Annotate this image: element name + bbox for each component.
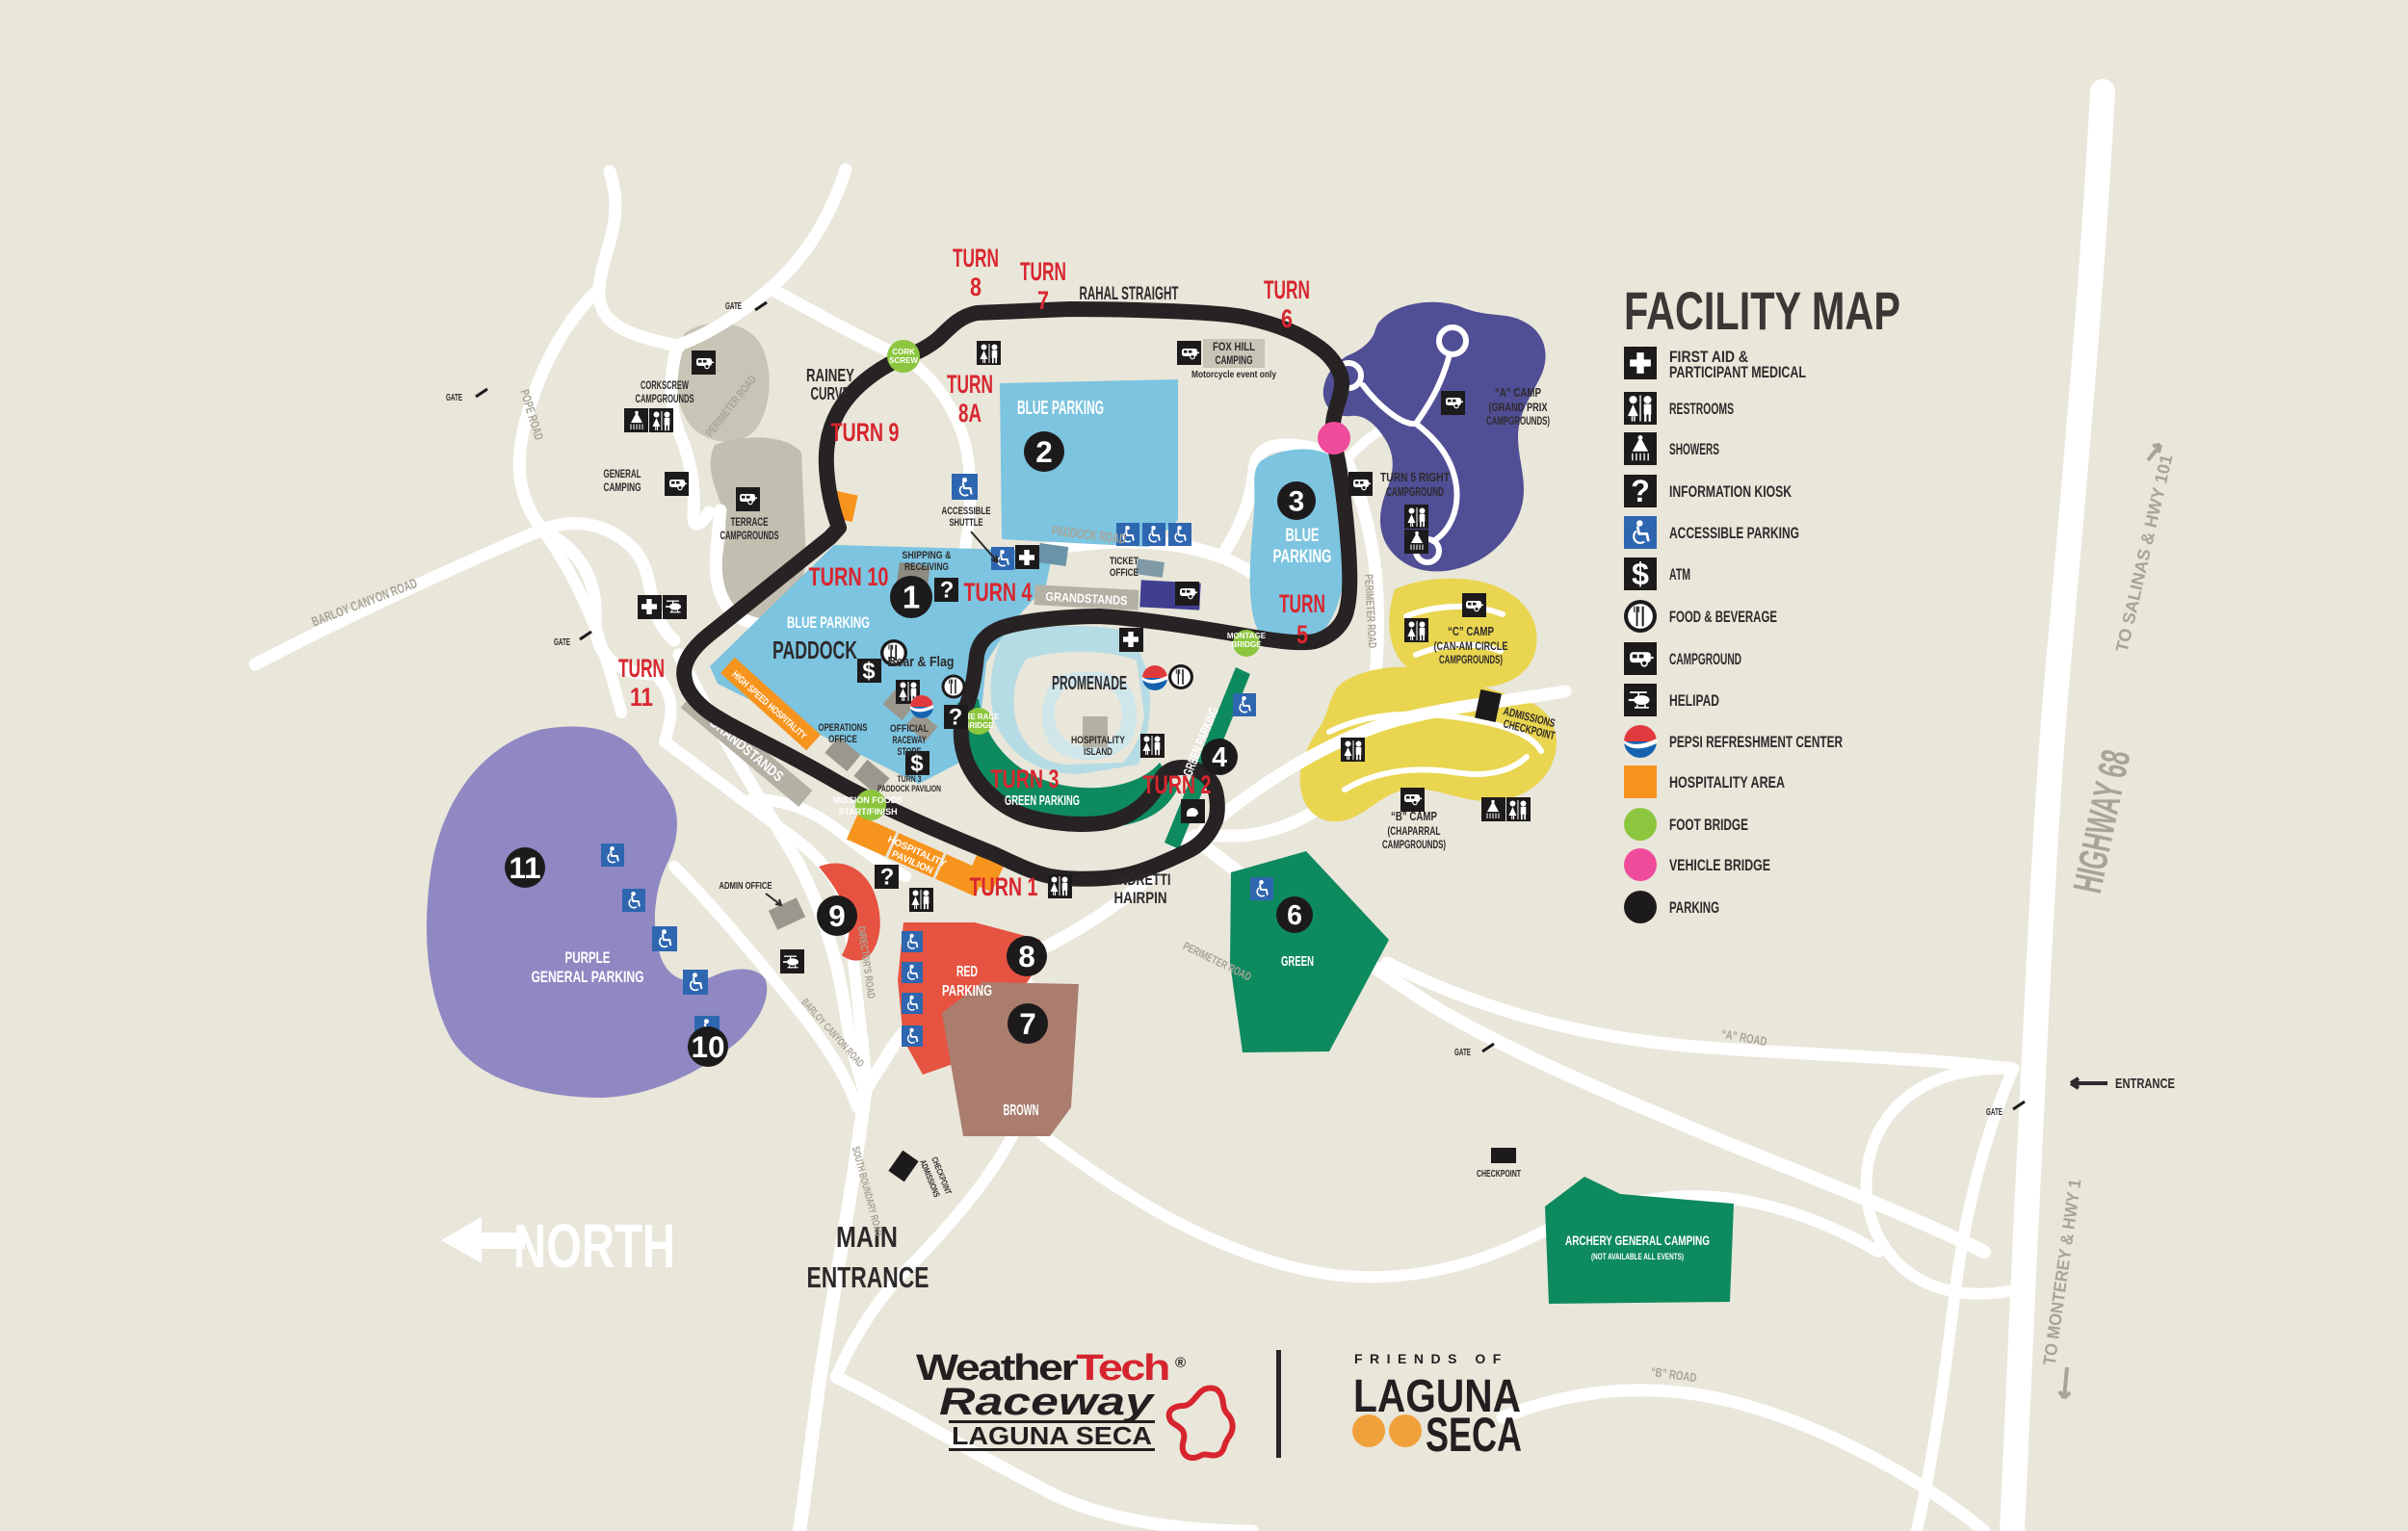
svg-text:11: 11: [509, 850, 540, 885]
svg-text:NORTH: NORTH: [513, 1211, 675, 1281]
svg-text:TICKET: TICKET: [1110, 556, 1139, 567]
svg-text:RACEWAY: RACEWAY: [893, 735, 927, 746]
svg-text:FOOD & BEVERAGE: FOOD & BEVERAGE: [1669, 608, 1777, 626]
svg-text:ACCESSIBLE PARKING: ACCESSIBLE PARKING: [1669, 524, 1799, 542]
svg-text:CAMPING: CAMPING: [604, 480, 641, 494]
svg-text:OFFICE: OFFICE: [1110, 567, 1139, 579]
svg-text:TURN: TURN: [1020, 257, 1066, 286]
svg-text:9: 9: [828, 898, 846, 933]
svg-text:PADDOCK PAVILION: PADDOCK PAVILION: [877, 784, 941, 793]
svg-text:PURPLE: PURPLE: [565, 948, 611, 967]
svg-text:RECEIVING: RECEIVING: [904, 561, 949, 573]
svg-text:MISSION FOODS: MISSION FOODS: [833, 795, 903, 805]
svg-text:GATE: GATE: [554, 637, 570, 648]
svg-text:PARKING: PARKING: [942, 983, 992, 999]
svg-text:10: 10: [691, 1029, 724, 1064]
svg-text:(CHAPARRAL: (CHAPARRAL: [1388, 824, 1441, 838]
svg-text:CAMPGROUNDS): CAMPGROUNDS): [1439, 653, 1503, 666]
svg-text:?: ?: [880, 864, 895, 890]
svg-text:GATE: GATE: [1986, 1107, 2002, 1118]
svg-text:ACCESSIBLE: ACCESSIBLE: [942, 506, 991, 517]
svg-text:MAIN: MAIN: [836, 1220, 898, 1254]
svg-text:FOOT BRIDGE: FOOT BRIDGE: [1669, 816, 1748, 834]
svg-text:LAGUNA SECA: LAGUNA SECA: [952, 1421, 1152, 1450]
svg-text:“B” CAMP: “B” CAMP: [1391, 809, 1437, 823]
svg-text:HOSPITALITY AREA: HOSPITALITY AREA: [1669, 773, 1785, 791]
svg-text:TURN 9: TURN 9: [831, 418, 900, 447]
svg-text:GATE: GATE: [446, 393, 462, 403]
svg-text:$: $: [1632, 557, 1649, 591]
svg-text:PARKING: PARKING: [1273, 547, 1332, 567]
svg-text:BLUE PARKING: BLUE PARKING: [787, 613, 870, 632]
svg-text:OFFICE: OFFICE: [828, 734, 857, 745]
svg-text:BRIDGE: BRIDGE: [963, 721, 994, 730]
svg-text:ANDRETTI: ANDRETTI: [1111, 870, 1171, 889]
svg-text:CORKSCREW: CORKSCREW: [641, 378, 689, 392]
svg-text:ARCHERY GENERAL CAMPING: ARCHERY GENERAL CAMPING: [1565, 1233, 1710, 1248]
svg-text:TURN: TURN: [953, 244, 999, 272]
svg-text:BROWN: BROWN: [1004, 1103, 1039, 1119]
svg-text:PROMENADE: PROMENADE: [1052, 673, 1127, 694]
svg-text:HOSPITALITY: HOSPITALITY: [1071, 735, 1126, 746]
svg-text:ADMIN OFFICE: ADMIN OFFICE: [720, 881, 772, 892]
svg-text:Bear & Flag: Bear & Flag: [888, 654, 955, 670]
svg-text:Motorcycle event only: Motorcycle event only: [1191, 370, 1276, 380]
svg-text:8: 8: [970, 272, 982, 301]
svg-text:GENERAL: GENERAL: [604, 467, 641, 480]
svg-text:6: 6: [1281, 304, 1293, 333]
svg-text:CAMPGROUNDS: CAMPGROUNDS: [720, 529, 779, 542]
svg-text:“C” CAMP: “C” CAMP: [1448, 624, 1494, 638]
svg-text:CAMPGROUNDS: CAMPGROUNDS: [636, 392, 694, 405]
svg-text:TURN: TURN: [1264, 275, 1310, 304]
svg-text:SCREW: SCREW: [889, 356, 918, 365]
svg-text:SHUTTLE: SHUTTLE: [950, 517, 983, 529]
svg-text:(GRAND PRIX: (GRAND PRIX: [1489, 401, 1548, 414]
svg-text:TURN 10: TURN 10: [809, 562, 889, 591]
svg-text:?: ?: [949, 704, 963, 730]
svg-text:TURN 3: TURN 3: [898, 774, 922, 784]
svg-text:CHECKPOINT: CHECKPOINT: [1477, 1169, 1521, 1180]
svg-text:FOX HILL: FOX HILL: [1213, 340, 1255, 353]
svg-text:FACILITY MAP: FACILITY MAP: [1624, 280, 1900, 341]
svg-text:MONTAGE: MONTAGE: [1227, 632, 1267, 640]
svg-text:?: ?: [1631, 474, 1650, 508]
svg-text:RAHAL STRAIGHT: RAHAL STRAIGHT: [1080, 284, 1179, 304]
svg-text:OPERATIONS: OPERATIONS: [819, 722, 868, 734]
svg-text:6: 6: [1287, 900, 1302, 931]
svg-text:(NOT AVAILABLE ALL EVENTS): (NOT AVAILABLE ALL EVENTS): [1591, 1252, 1684, 1261]
svg-text:RESTROOMS: RESTROOMS: [1669, 400, 1734, 418]
svg-text:RAINEY: RAINEY: [806, 366, 854, 385]
svg-text:GREEN: GREEN: [1281, 953, 1314, 970]
svg-text:TURN: TURN: [947, 370, 993, 399]
svg-text:TURN 3: TURN 3: [991, 765, 1060, 793]
svg-text:TURN 5 RIGHT: TURN 5 RIGHT: [1380, 470, 1450, 484]
svg-text:11: 11: [630, 683, 653, 712]
svg-text:SHIPPING &: SHIPPING &: [903, 550, 952, 561]
svg-text:TURN 1: TURN 1: [970, 872, 1038, 901]
svg-text:HELIPAD: HELIPAD: [1669, 691, 1719, 710]
svg-text:TURN 2: TURN 2: [1143, 770, 1212, 799]
svg-text:GREEN PARKING: GREEN PARKING: [1005, 792, 1080, 809]
svg-text:7: 7: [1019, 1006, 1036, 1041]
svg-text:ENTRANCE: ENTRANCE: [2115, 1076, 2175, 1092]
svg-text:TURN 4: TURN 4: [964, 578, 1033, 607]
svg-text:CAMPGROUND: CAMPGROUND: [1669, 650, 1741, 668]
svg-text:CAMPING: CAMPING: [1216, 353, 1253, 367]
svg-text:FRIENDS OF: FRIENDS OF: [1354, 1351, 1508, 1366]
svg-text:BLUE PARKING: BLUE PARKING: [1017, 398, 1104, 419]
svg-text:GENERAL PARKING: GENERAL PARKING: [532, 968, 644, 986]
svg-text:HAIRPIN: HAIRPIN: [1114, 889, 1167, 907]
svg-text:ISLAND: ISLAND: [1084, 746, 1112, 758]
svg-text:PARTICIPANT MEDICAL: PARTICIPANT MEDICAL: [1669, 363, 1806, 381]
svg-text:BRIDGE: BRIDGE: [1231, 640, 1262, 649]
svg-text:®: ®: [1175, 1355, 1186, 1371]
svg-text:7: 7: [1037, 286, 1049, 315]
svg-text:CURVE: CURVE: [811, 384, 851, 403]
svg-text:TURN: TURN: [618, 654, 665, 683]
svg-text:TERRACE: TERRACE: [731, 515, 769, 529]
svg-text:“A” CAMP: “A” CAMP: [1495, 385, 1541, 400]
svg-text:3: 3: [1289, 485, 1305, 517]
svg-text:TURN: TURN: [1279, 589, 1325, 618]
svg-text:Raceway: Raceway: [939, 1381, 1155, 1423]
svg-text:START/FINISH: START/FINISH: [838, 807, 897, 817]
svg-text:INFORMATION KIOSK: INFORMATION KIOSK: [1669, 482, 1793, 501]
svg-text:8A: 8A: [958, 399, 982, 428]
svg-text:OFFICIAL: OFFICIAL: [890, 723, 929, 735]
svg-text:5: 5: [1296, 620, 1308, 649]
svg-text:ATM: ATM: [1669, 565, 1690, 584]
svg-text:CAMPGROUNDS): CAMPGROUNDS): [1486, 414, 1550, 428]
svg-text:RED: RED: [956, 964, 978, 980]
svg-text:VEHICLE BRIDGE: VEHICLE BRIDGE: [1669, 856, 1770, 874]
svg-text:PADDOCK: PADDOCK: [772, 636, 857, 664]
svg-text:CAMPGROUND: CAMPGROUND: [1386, 484, 1444, 499]
svg-text:GATE: GATE: [1454, 1048, 1471, 1058]
svg-text:PARKING: PARKING: [1669, 898, 1719, 917]
svg-text:?: ?: [940, 577, 955, 603]
svg-text:ENTRANCE: ENTRANCE: [807, 1260, 929, 1294]
svg-text:SHOWERS: SHOWERS: [1669, 440, 1719, 458]
svg-text:CAMPGROUNDS): CAMPGROUNDS): [1382, 838, 1446, 851]
svg-text:(CAN-AM CIRCLE: (CAN-AM CIRCLE: [1434, 639, 1508, 653]
svg-text:$: $: [862, 658, 875, 684]
svg-text:SECA: SECA: [1426, 1408, 1522, 1462]
svg-text:1: 1: [903, 579, 920, 614]
svg-text:BLUE: BLUE: [1286, 526, 1320, 546]
svg-text:8: 8: [1018, 939, 1035, 973]
svg-text:2: 2: [1035, 434, 1053, 469]
svg-text:4: 4: [1212, 742, 1227, 773]
svg-text:PEPSI REFRESHMENT CENTER: PEPSI REFRESHMENT CENTER: [1669, 733, 1843, 751]
svg-text:STORE: STORE: [898, 746, 922, 758]
svg-text:CORK: CORK: [892, 348, 915, 356]
svg-text:GATE: GATE: [725, 301, 742, 312]
